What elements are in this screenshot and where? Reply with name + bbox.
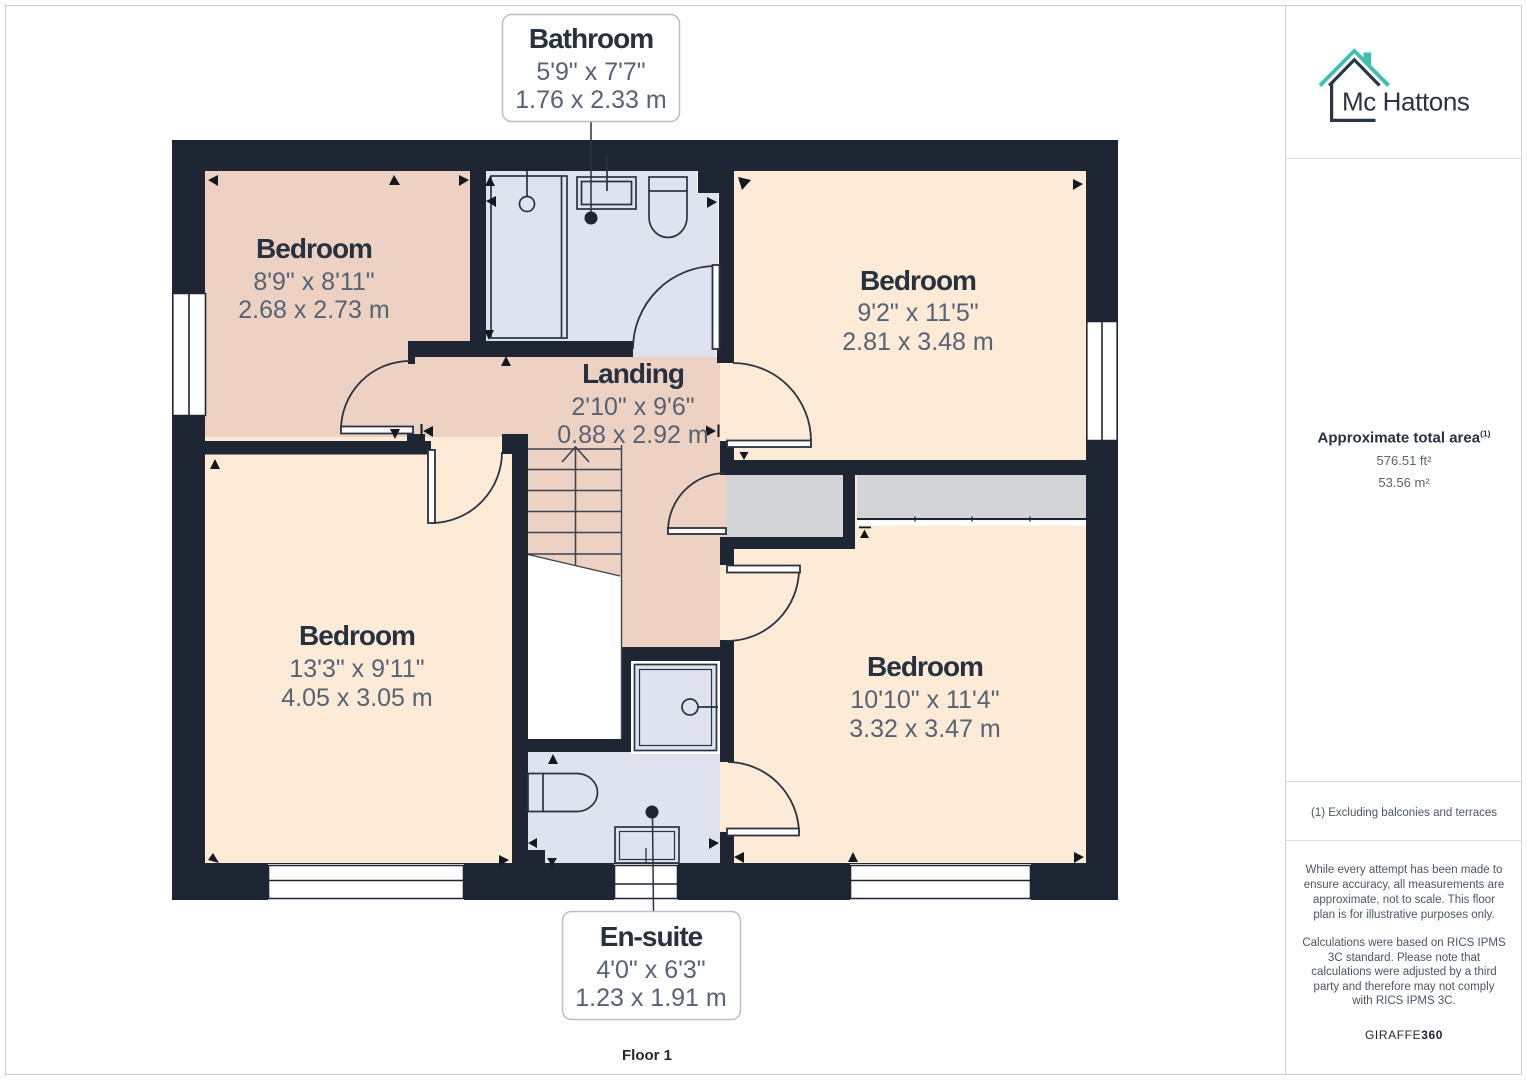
svg-text:9'2" x 11'5": 9'2" x 11'5": [857, 299, 978, 327]
svg-text:53.56 m²: 53.56 m²: [1378, 475, 1430, 490]
svg-text:approximate, not to scale. Thi: approximate, not to scale. This floor: [1313, 894, 1495, 906]
svg-text:5'9" x 7'7": 5'9" x 7'7": [536, 58, 645, 86]
svg-text:ensure accuracy, all measureme: ensure accuracy, all measurements are: [1304, 879, 1505, 891]
svg-text:1.23 x 1.91 m: 1.23 x 1.91 m: [575, 984, 726, 1012]
svg-text:(1) Excluding balconies and te: (1) Excluding balconies and terraces: [1311, 807, 1497, 819]
svg-text:party and therefore may not co: party and therefore may not comply: [1314, 981, 1495, 993]
svg-text:Bedroom: Bedroom: [256, 233, 372, 264]
svg-text:8'9" x 8'11": 8'9" x 8'11": [253, 268, 374, 296]
svg-text:plan is for illustrative purpo: plan is for illustrative purposes only.: [1313, 909, 1494, 921]
svg-text:576.51 ft²: 576.51 ft²: [1377, 453, 1433, 468]
svg-text:While every attempt has been m: While every attempt has been made to: [1306, 864, 1503, 876]
svg-text:Bedroom: Bedroom: [867, 651, 983, 682]
svg-text:Landing: Landing: [582, 358, 684, 389]
svg-text:GIRAFFE360: GIRAFFE360: [1365, 1028, 1443, 1042]
svg-text:Bathroom: Bathroom: [529, 23, 653, 54]
svg-text:Bedroom: Bedroom: [299, 620, 415, 651]
svg-text:0.88 x 2.92 m: 0.88 x 2.92 m: [557, 421, 708, 449]
svg-text:13'3" x 9'11": 13'3" x 9'11": [289, 655, 424, 683]
svg-text:2.81 x 3.48 m: 2.81 x 3.48 m: [842, 328, 993, 356]
svg-text:1.76 x 2.33 m: 1.76 x 2.33 m: [515, 86, 666, 114]
svg-text:2'10" x 9'6": 2'10" x 9'6": [571, 393, 694, 421]
svg-text:Approximate total area(1): Approximate total area(1): [1318, 429, 1491, 447]
svg-text:calculations were adjusted by: calculations were adjusted by a third: [1311, 966, 1496, 978]
svg-text:3.32 x 3.47 m: 3.32 x 3.47 m: [849, 715, 1000, 743]
svg-text:Floor 1: Floor 1: [622, 1047, 672, 1064]
svg-text:10'10" x 11'4": 10'10" x 11'4": [850, 686, 999, 714]
svg-text:with RICS IPMS 3C.: with RICS IPMS 3C.: [1351, 995, 1456, 1007]
svg-text:Calculations were based on RIC: Calculations were based on RICS IPMS: [1302, 937, 1506, 949]
svg-text:Bedroom: Bedroom: [860, 265, 976, 296]
svg-text:En-suite: En-suite: [600, 921, 703, 952]
svg-text:4'0" x 6'3": 4'0" x 6'3": [596, 956, 705, 984]
svg-text:Mc Hattons: Mc Hattons: [1342, 87, 1470, 117]
svg-text:2.68 x 2.73 m: 2.68 x 2.73 m: [238, 296, 389, 324]
svg-text:3C standard. Please note that: 3C standard. Please note that: [1328, 952, 1481, 964]
svg-text:4.05 x 3.05 m: 4.05 x 3.05 m: [281, 684, 432, 712]
